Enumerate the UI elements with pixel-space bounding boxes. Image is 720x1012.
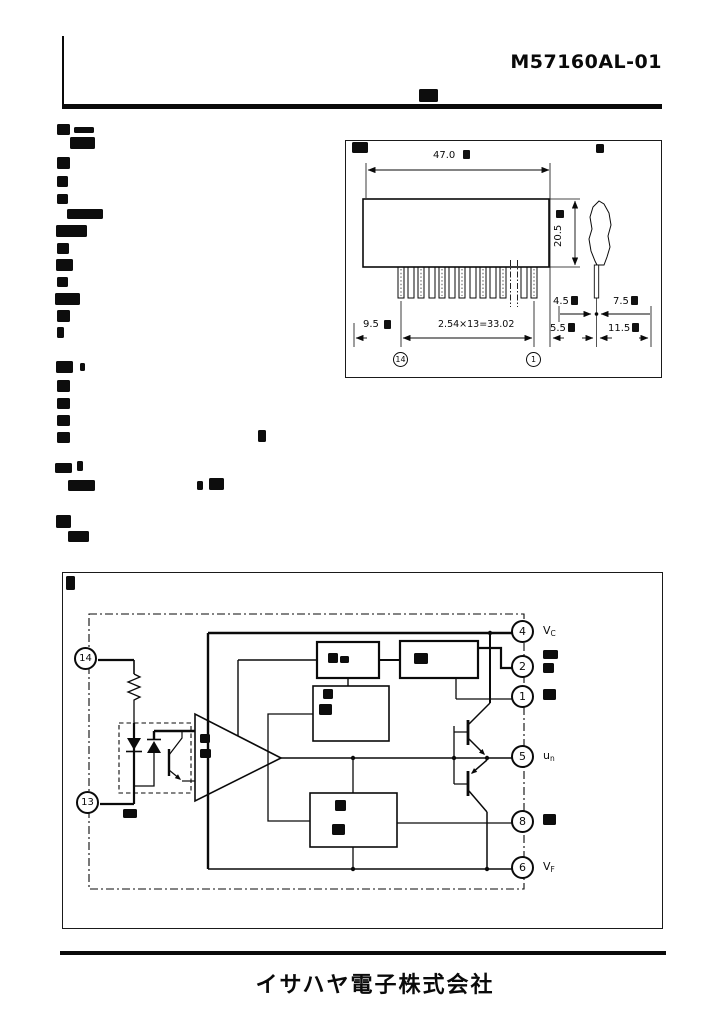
illegible-text-blob xyxy=(209,478,224,490)
illegible-text-blob xyxy=(57,380,70,392)
illegible-text-blob xyxy=(197,481,203,490)
datasheet-page: M57160AL-01 xyxy=(0,0,720,1012)
illegible-diagram-title-blob xyxy=(66,576,75,590)
vc-base: V xyxy=(543,624,551,637)
block-diagram-panel xyxy=(62,572,663,929)
illegible-block-label-blob xyxy=(340,656,349,663)
illegible-text-blob xyxy=(55,293,80,305)
illegible-text-blob xyxy=(68,531,89,542)
un-sub: n xyxy=(550,754,555,763)
illegible-block-label-blob xyxy=(335,800,346,811)
diagram-pin-14: 14 xyxy=(74,647,97,670)
illegible-text-blob xyxy=(68,480,95,491)
illegible-text-blob xyxy=(67,209,103,219)
diagram-pin-13: 13 xyxy=(76,791,99,814)
illegible-pin8-label-blob xyxy=(543,814,556,825)
diagram-pin-8: 8 xyxy=(511,810,534,833)
pin-label-un: un xyxy=(543,749,555,763)
tolerance-mark xyxy=(556,210,564,218)
pin-label-vc: VC xyxy=(543,624,556,638)
illegible-text-blob xyxy=(57,194,68,204)
illegible-block-label-blob xyxy=(328,653,338,663)
tolerance-mark xyxy=(463,150,470,159)
tolerance-mark xyxy=(384,320,391,329)
dim-lead-rear: 7.5 xyxy=(613,297,629,307)
vc-sub: C xyxy=(551,629,556,638)
pin-label-vf: VF xyxy=(543,860,555,874)
illegible-header-text-blob xyxy=(419,89,438,102)
illegible-text-blob xyxy=(56,515,71,528)
illegible-block-label-blob xyxy=(319,704,332,715)
illegible-text-blob xyxy=(56,225,87,237)
illegible-text-blob xyxy=(258,430,266,442)
header-left-border xyxy=(62,36,64,106)
illegible-text-blob xyxy=(57,157,70,169)
illegible-pin2-label-blob xyxy=(543,663,554,673)
illegible-amp-label-blob xyxy=(200,749,211,758)
tolerance-mark xyxy=(632,323,639,332)
header-rule xyxy=(62,104,662,109)
package-outline-panel xyxy=(345,140,662,378)
illegible-text-blob xyxy=(57,124,70,135)
illegible-text-blob xyxy=(74,127,94,133)
illegible-pin1-label-blob xyxy=(543,689,556,700)
diagram-pin-6: 6 xyxy=(511,856,534,879)
dim-edge-to-pin1: 9.5 xyxy=(363,320,379,330)
pin-callout-14: 14 xyxy=(393,352,408,367)
block-diagram-drawing xyxy=(63,573,662,928)
illegible-amp-label-blob xyxy=(200,734,210,743)
illegible-text-blob xyxy=(57,327,64,338)
vf-sub: F xyxy=(551,865,555,874)
illegible-text-blob xyxy=(55,463,72,473)
illegible-text-blob xyxy=(57,277,68,287)
diagram-pin-1: 1 xyxy=(511,685,534,708)
illegible-text-blob xyxy=(57,432,70,443)
tolerance-mark xyxy=(631,296,638,305)
illegible-package-title-blob xyxy=(352,142,368,153)
footer-rule xyxy=(60,951,666,955)
illegible-text-blob xyxy=(57,176,68,187)
illegible-block-label-blob xyxy=(323,689,333,699)
dim-body-width: 47.0 xyxy=(433,151,455,161)
vf-base: V xyxy=(543,860,551,873)
illegible-unit-note-blob xyxy=(596,144,604,153)
illegible-pin13-note-blob xyxy=(123,809,137,818)
pin-callout-1: 1 xyxy=(526,352,541,367)
illegible-text-blob xyxy=(57,415,70,426)
illegible-pin2-label-blob xyxy=(543,650,558,659)
dim-lead-low-rear: 11.5 xyxy=(608,324,630,334)
diagram-pin-5: 5 xyxy=(511,745,534,768)
illegible-text-blob xyxy=(70,137,95,149)
dim-body-height: 20.5 xyxy=(554,219,564,247)
illegible-block-label-blob xyxy=(332,824,345,835)
diagram-pin-2: 2 xyxy=(511,655,534,678)
illegible-block-label-blob xyxy=(414,653,428,664)
illegible-text-blob xyxy=(56,259,73,271)
tolerance-mark xyxy=(571,296,578,305)
illegible-text-blob xyxy=(56,361,73,373)
dim-lead-front: 4.5 xyxy=(553,297,569,307)
illegible-text-blob xyxy=(80,363,85,371)
illegible-text-blob xyxy=(57,243,69,254)
company-name: イサハヤ電子株式会社 xyxy=(160,967,590,999)
part-number-title: M57160AL-01 xyxy=(400,51,662,73)
tolerance-mark xyxy=(568,323,575,332)
diagram-pin-4: 4 xyxy=(511,620,534,643)
illegible-text-blob xyxy=(77,461,83,471)
package-outline-drawing xyxy=(346,141,661,377)
dim-lead-low-front: 5.5 xyxy=(550,324,566,334)
dim-pin-pitch: 2.54×13=33.02 xyxy=(438,320,514,330)
un-base: u xyxy=(543,749,550,762)
illegible-text-blob xyxy=(57,398,70,409)
illegible-text-blob xyxy=(57,310,70,322)
